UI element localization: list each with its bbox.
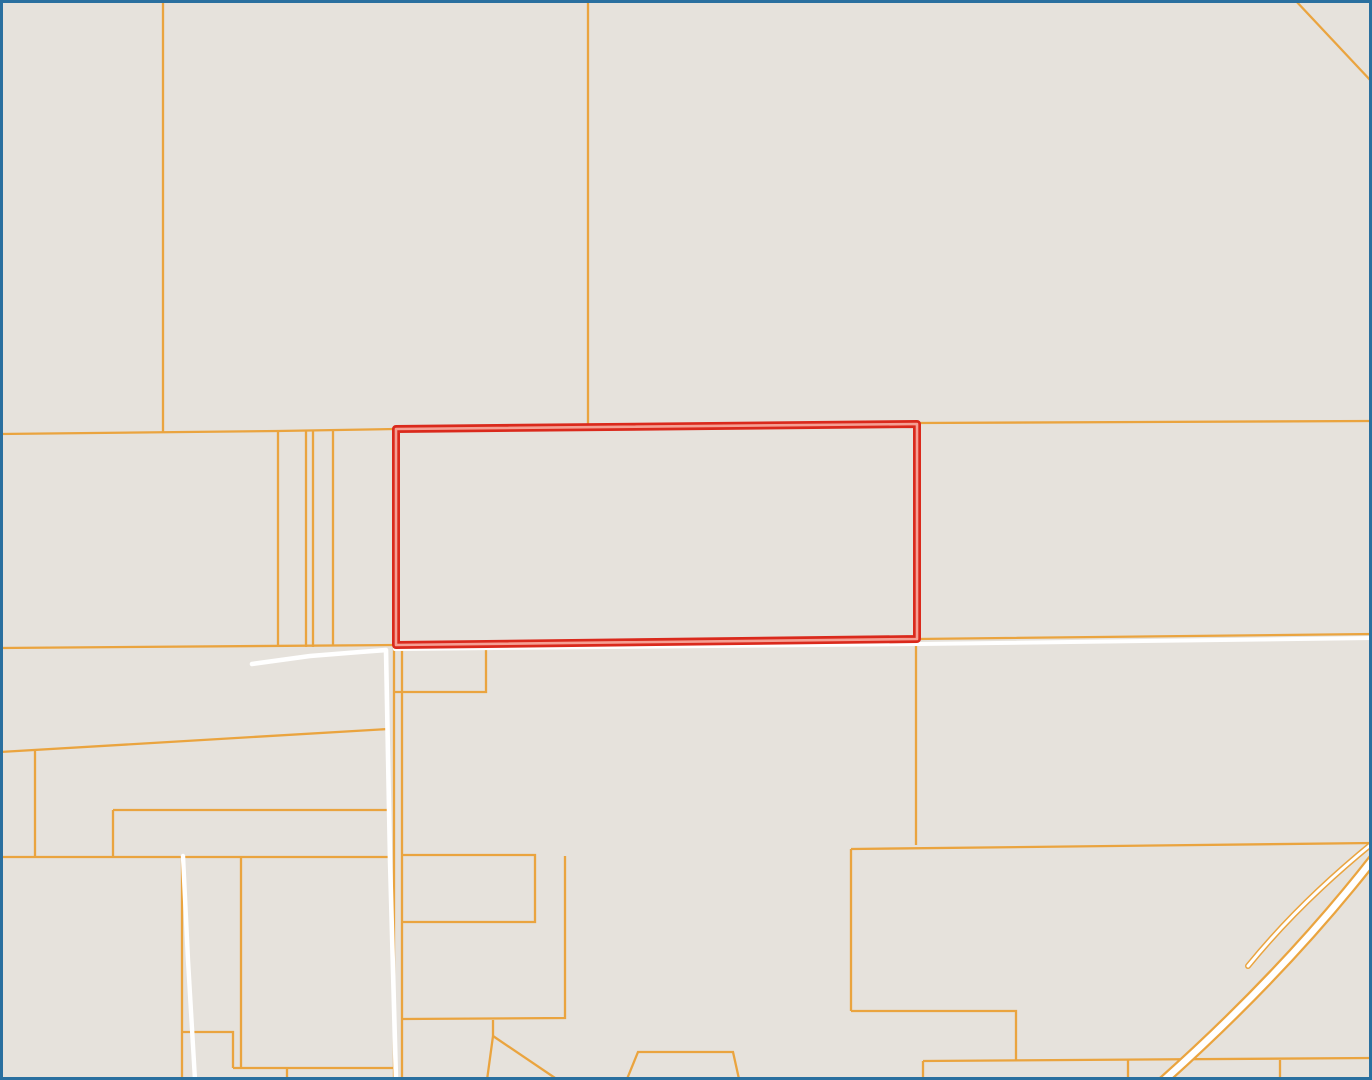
map-background — [0, 0, 1372, 1080]
parcel-map-canvas[interactable] — [0, 0, 1372, 1080]
map-viewport[interactable] — [0, 0, 1372, 1080]
